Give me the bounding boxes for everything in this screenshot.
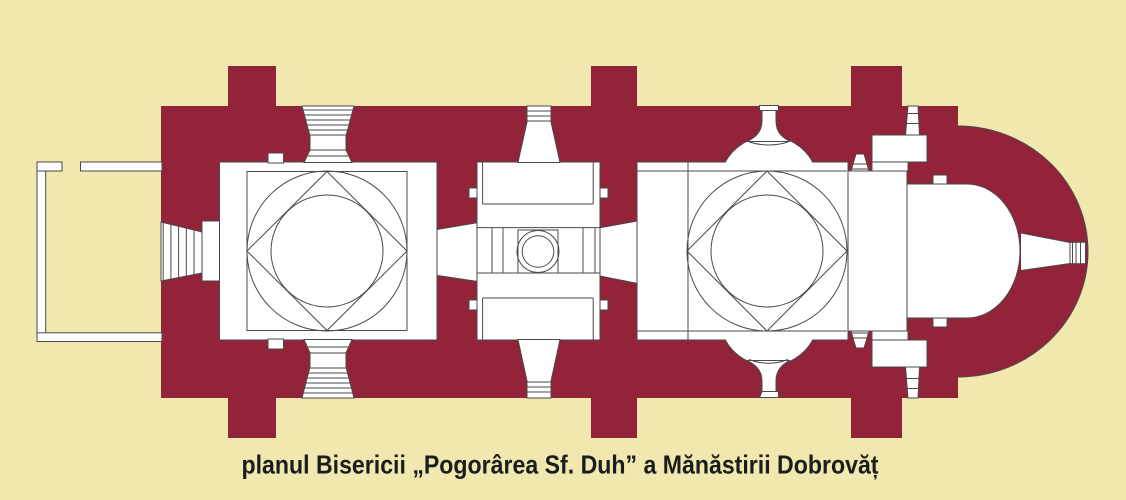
svg-text:planul Bisericii „Pogorârea Sf: planul Bisericii „Pogorârea Sf. Duh” a M… xyxy=(242,449,879,479)
